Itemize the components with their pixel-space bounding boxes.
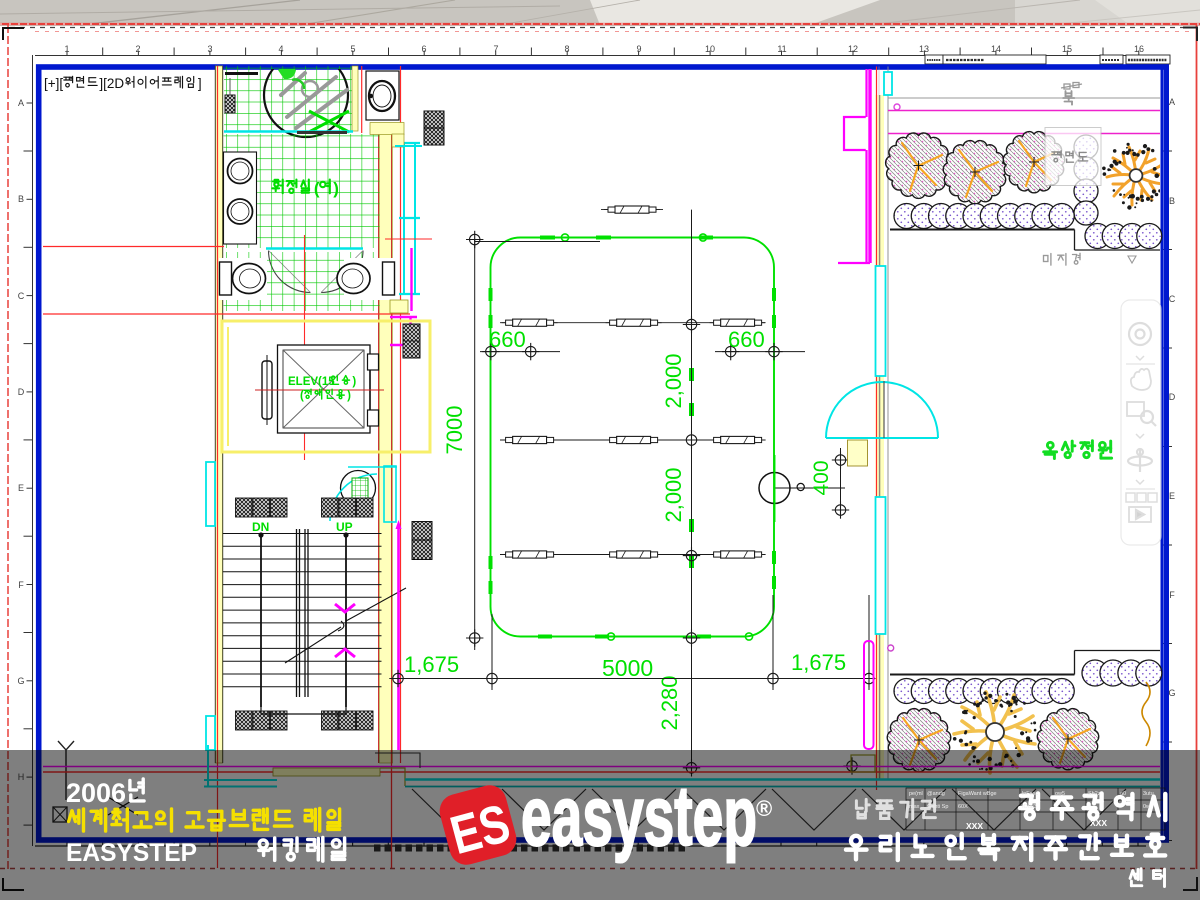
svg-text:7: 7 (493, 44, 498, 54)
svg-text:2006: 2006 (66, 778, 126, 808)
svg-text:): ) (333, 179, 339, 198)
svg-text:(: ( (314, 179, 320, 198)
svg-text:@andg: @andg (927, 791, 945, 797)
svg-text:2,280: 2,280 (657, 675, 682, 730)
svg-text:DN: DN (252, 520, 269, 534)
svg-text:10: 10 (705, 44, 715, 54)
svg-text:EASYSTEP: EASYSTEP (66, 839, 197, 867)
svg-text:[+][: [+][ (44, 76, 63, 91)
svg-text:2,000: 2,000 (661, 353, 686, 408)
svg-text:®: ® (756, 796, 772, 821)
svg-text:660: 660 (489, 327, 526, 352)
svg-text:Gahti Sp: Gahti Sp (927, 804, 948, 810)
svg-text:5: 5 (350, 44, 355, 54)
svg-text:A: A (1169, 97, 1175, 107)
svg-text:lnFasc: lnFasc (1022, 791, 1038, 797)
svg-text:ELEV(15: ELEV(15 (288, 376, 335, 388)
svg-text:14: 14 (991, 44, 1001, 54)
svg-text:C: C (1169, 294, 1176, 304)
svg-text:3: 3 (207, 44, 212, 54)
svg-text:1,675: 1,675 (791, 650, 846, 675)
svg-text:60X: 60X (958, 804, 968, 810)
svg-text:][2D: ][2D (99, 76, 124, 91)
svg-text:F: F (18, 580, 24, 590)
svg-text:2: 2 (135, 44, 140, 54)
svg-text:E: E (18, 483, 24, 493)
svg-text:D: D (18, 387, 25, 397)
svg-text:8: 8 (564, 44, 569, 54)
svg-text:FigaWant wBge: FigaWant wBge (958, 791, 997, 797)
svg-text:tOtal3: tOtal3 (1022, 804, 1037, 810)
svg-text:13: 13 (919, 44, 929, 54)
svg-text:660: 660 (728, 327, 765, 352)
svg-text:E: E (1169, 491, 1175, 501)
svg-text:16: 16 (1134, 44, 1144, 54)
svg-text:12: 12 (848, 44, 858, 54)
svg-text:2,000: 2,000 (661, 467, 686, 522)
svg-text:9: 9 (636, 44, 641, 54)
svg-text:B: B (1169, 196, 1175, 206)
svg-text:G: G (17, 676, 24, 686)
svg-text:easystep: easystep (521, 769, 757, 863)
svg-text:UP: UP (336, 520, 353, 534)
svg-text:15: 15 (1062, 44, 1072, 54)
svg-text:1: 1 (64, 44, 69, 54)
svg-text:): ) (352, 376, 356, 388)
svg-text:A: A (18, 98, 24, 108)
svg-text:max: max (909, 804, 920, 810)
svg-text:XXX: XXX (1090, 818, 1107, 828)
svg-text:(: ( (300, 390, 304, 402)
svg-text:3utu: 3utu (1143, 791, 1154, 797)
svg-text:ow5: ow5 (1055, 791, 1065, 797)
svg-text:4: 4 (278, 44, 283, 54)
svg-text:G: G (1168, 688, 1175, 698)
svg-text:0w: 0w (1143, 804, 1150, 810)
svg-text:7000: 7000 (442, 406, 467, 455)
svg-text:5000: 5000 (602, 655, 653, 681)
svg-text:B: B (18, 194, 24, 204)
svg-text:Sh2z: Sh2z (1088, 791, 1101, 797)
svg-text:XXX: XXX (966, 821, 983, 831)
svg-text:): ) (347, 390, 351, 402)
svg-text:F: F (1169, 590, 1175, 600)
svg-text:a0: a0 (1120, 791, 1126, 797)
svg-text:6: 6 (421, 44, 426, 54)
svg-text:400: 400 (810, 460, 833, 495)
svg-text:11: 11 (777, 44, 786, 54)
svg-text:1,675: 1,675 (404, 652, 459, 677)
svg-text:D: D (1169, 392, 1176, 402)
svg-text:C: C (18, 291, 25, 301)
svg-text:]: ] (198, 76, 202, 91)
svg-text:pe(ml: pe(ml (909, 791, 923, 797)
